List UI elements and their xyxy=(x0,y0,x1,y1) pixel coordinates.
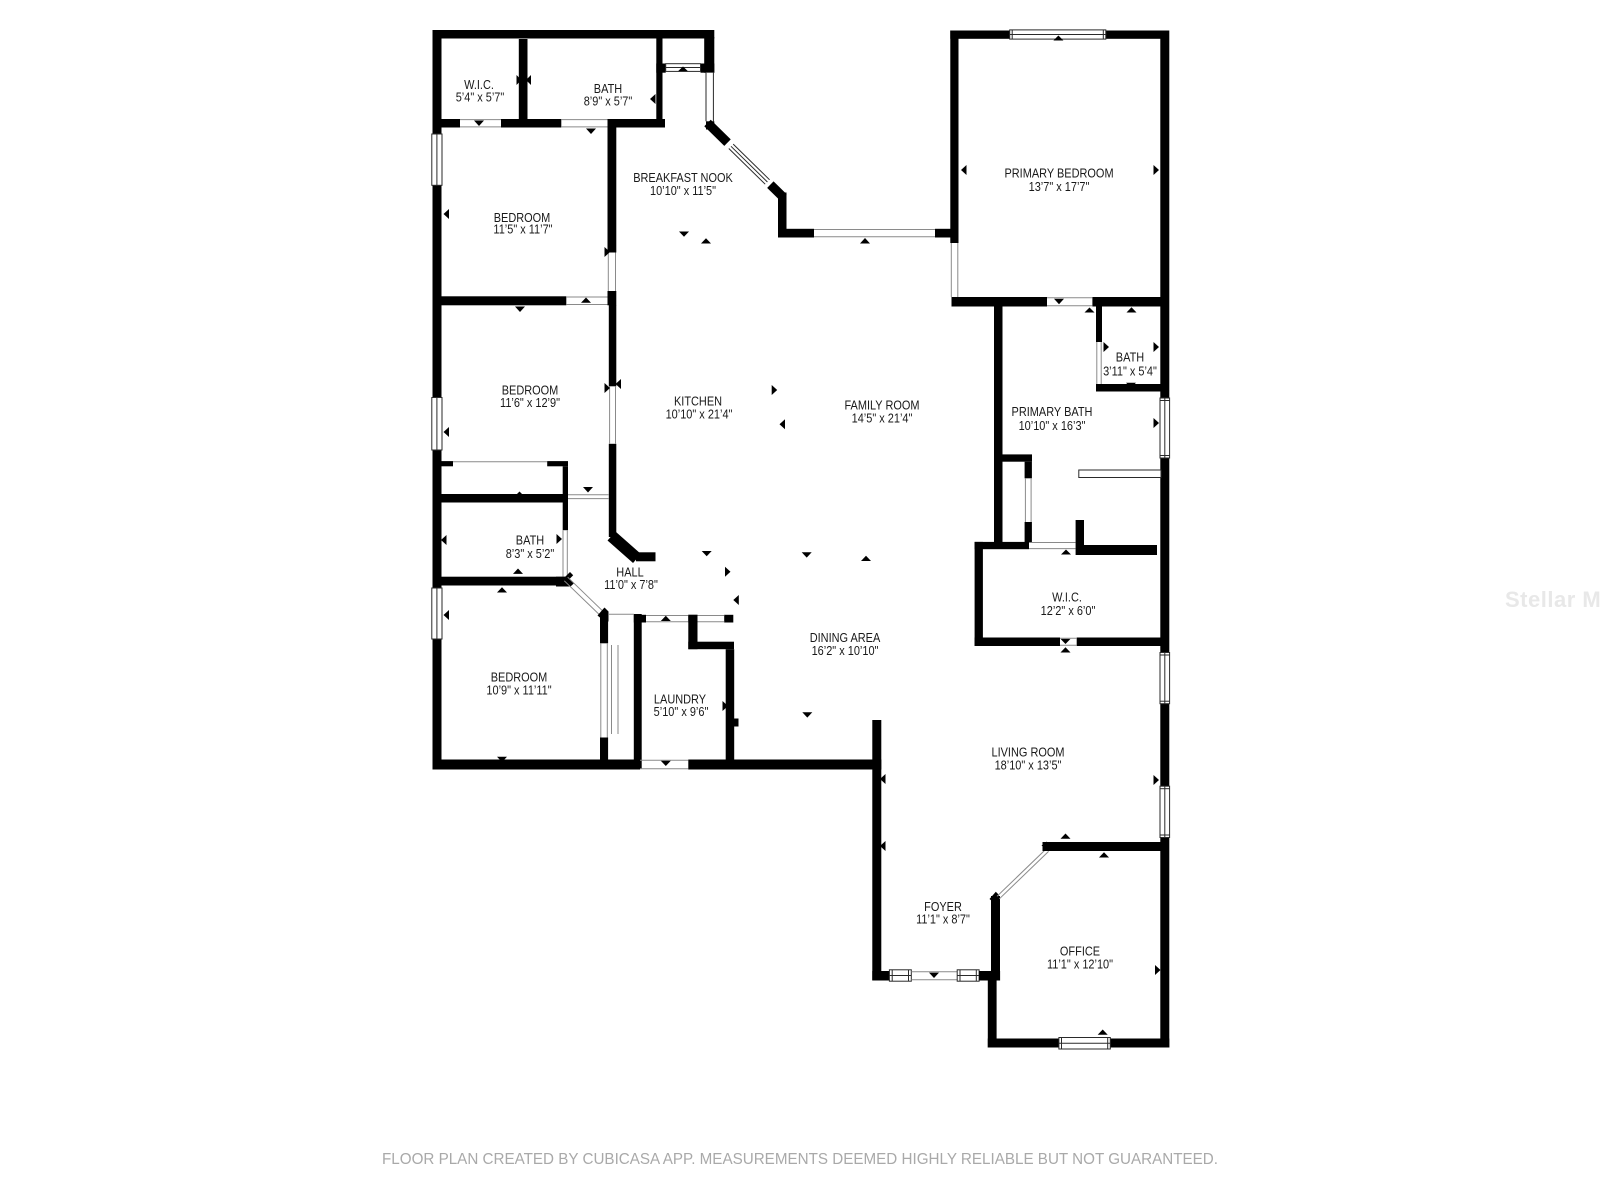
svg-text:3’11" x 5’4": 3’11" x 5’4" xyxy=(1103,363,1157,378)
svg-text:14’5" x 21’4": 14’5" x 21’4" xyxy=(852,410,913,425)
svg-text:11’6" x 12’9": 11’6" x 12’9" xyxy=(500,395,560,410)
svg-text:13’7" x 17’7": 13’7" x 17’7" xyxy=(1029,179,1090,194)
svg-text:FLOOR PLAN CREATED BY CUBICASA: FLOOR PLAN CREATED BY CUBICASA APP. MEAS… xyxy=(382,1151,1218,1168)
svg-text:10’10" x 16’3": 10’10" x 16’3" xyxy=(1019,418,1086,433)
svg-text:5’4" x 5’7": 5’4" x 5’7" xyxy=(456,89,505,104)
svg-text:11’0" x 7’8": 11’0" x 7’8" xyxy=(604,577,658,592)
svg-text:18’10" x 13’5": 18’10" x 13’5" xyxy=(995,757,1062,772)
svg-text:16’2" x 10’10": 16’2" x 10’10" xyxy=(812,643,879,658)
svg-text:10’10" x 11’5": 10’10" x 11’5" xyxy=(650,183,716,198)
svg-text:Stellar MLS: Stellar MLS xyxy=(1505,587,1600,612)
svg-text:5’10" x 9’6": 5’10" x 9’6" xyxy=(654,704,709,719)
svg-text:12’2" x 6’0": 12’2" x 6’0" xyxy=(1041,603,1096,618)
svg-text:11’1" x 8’7": 11’1" x 8’7" xyxy=(916,911,970,926)
svg-text:11’1" x 12’10": 11’1" x 12’10" xyxy=(1047,956,1113,971)
svg-text:8’3" x 5’2": 8’3" x 5’2" xyxy=(506,546,555,561)
svg-text:8’9" x 5’7": 8’9" x 5’7" xyxy=(584,93,633,108)
svg-text:PRIMARY BATH: PRIMARY BATH xyxy=(1012,404,1093,419)
svg-text:11’5" x 11’7": 11’5" x 11’7" xyxy=(493,221,552,236)
svg-text:10’9" x 11’11": 10’9" x 11’11" xyxy=(486,682,551,697)
svg-text:10’10" x 21’4": 10’10" x 21’4" xyxy=(666,406,733,421)
svg-text:BATH: BATH xyxy=(1116,349,1144,364)
